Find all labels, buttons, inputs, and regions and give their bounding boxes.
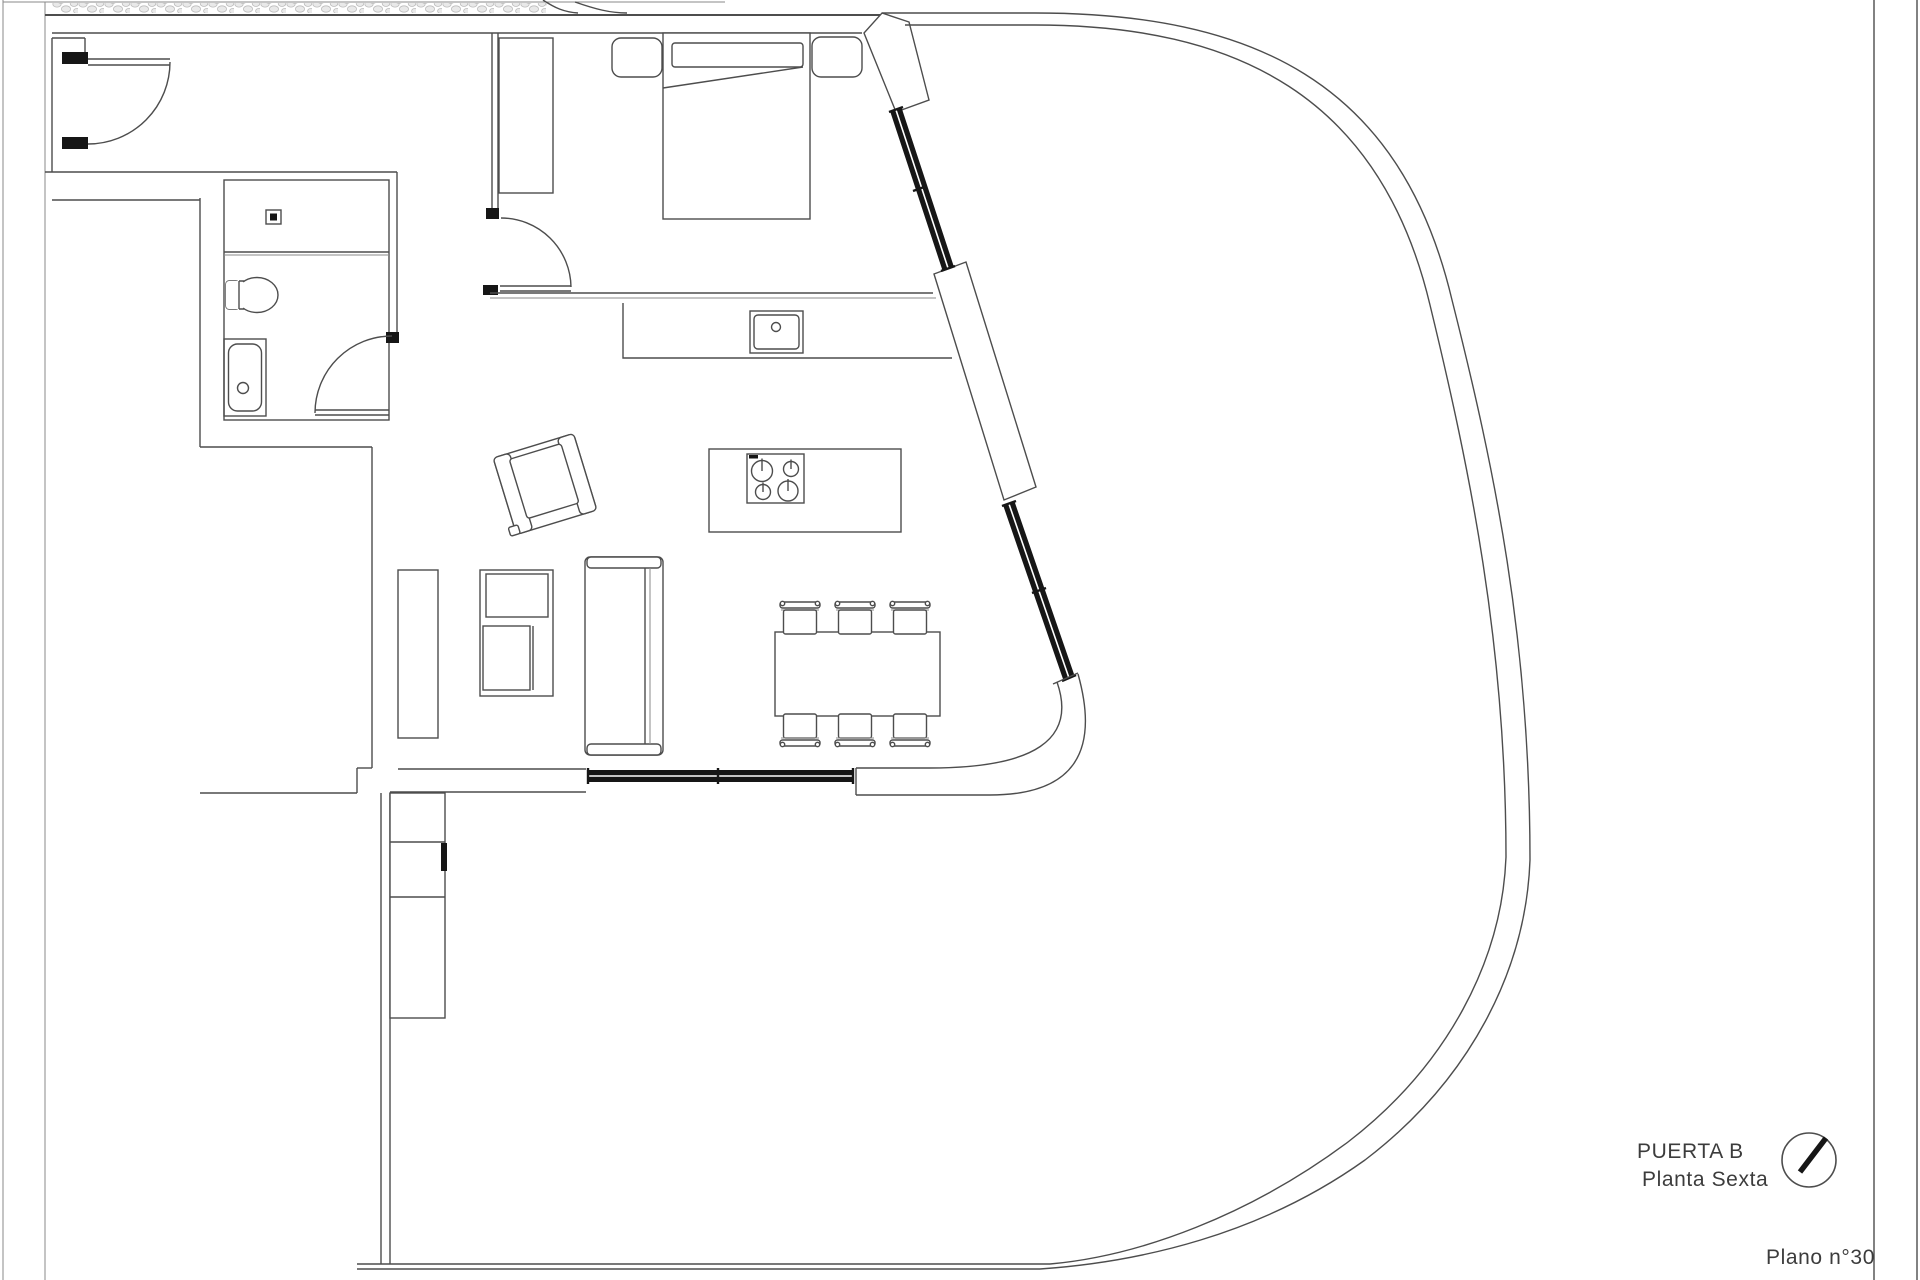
entry-hall-walls — [45, 38, 397, 447]
dining-chair — [890, 601, 930, 634]
shelf-column — [398, 570, 438, 738]
kitchen-sink — [750, 311, 803, 353]
bathroom-door — [315, 336, 392, 415]
tv-cabinet — [480, 570, 553, 696]
kitchen-island — [709, 449, 901, 532]
pillow — [672, 43, 803, 67]
sofa — [585, 557, 663, 755]
door-swing-arc — [315, 336, 392, 413]
page-border — [3, 0, 1917, 1280]
bedroom-door — [500, 218, 571, 291]
bedroom — [486, 33, 862, 291]
title-block: PUERTA B Planta Sexta Plano n°30 — [1637, 1133, 1875, 1269]
door-jamb — [62, 52, 88, 64]
entry-door — [62, 52, 170, 149]
floor-plan-sheet: PUERTA B Planta Sexta Plano n°30 — [0, 0, 1920, 1280]
dining-chair — [835, 714, 875, 747]
wardrobe — [499, 38, 553, 193]
sheet-number-label: Plano n°30 — [1766, 1246, 1875, 1269]
toilet — [226, 278, 278, 313]
dining-set — [775, 601, 940, 746]
facade-window-lower — [1002, 501, 1076, 681]
bathtub — [224, 339, 266, 416]
armchair — [487, 433, 596, 536]
bathroom — [224, 172, 399, 420]
shower-drain — [266, 210, 281, 224]
dining-chair — [780, 601, 820, 634]
armrest — [587, 557, 661, 568]
faucet — [772, 323, 781, 332]
facade-wall-segment-2 — [934, 262, 1036, 500]
floor-plan-drawing: PUERTA B Planta Sexta Plano n°30 — [0, 0, 1920, 1280]
dining-chair — [780, 714, 820, 747]
dining-chair — [890, 714, 930, 747]
terrace-storage-unit — [390, 793, 447, 1018]
door-jamb — [62, 137, 88, 149]
living-room-window — [588, 768, 853, 784]
armrest — [587, 744, 661, 755]
dining-table — [775, 632, 940, 716]
floor-label: Planta Sexta — [1642, 1168, 1768, 1191]
door-swing-arc — [88, 62, 170, 144]
door-jamb — [486, 208, 499, 219]
north-indicator-icon — [1782, 1133, 1836, 1187]
bed — [663, 33, 810, 219]
door-label: PUERTA B — [1637, 1140, 1744, 1163]
nightstand-left — [612, 38, 662, 77]
dining-chair — [835, 601, 875, 634]
door-swing-arc — [501, 218, 571, 287]
door-jamb — [386, 332, 399, 343]
nightstand-right — [812, 37, 862, 77]
terrace-parapet-curve — [882, 13, 1530, 1269]
facade-wall-segment-1 — [864, 13, 929, 112]
facade-window-upper — [889, 107, 955, 271]
living-room-south-wall — [390, 769, 586, 792]
